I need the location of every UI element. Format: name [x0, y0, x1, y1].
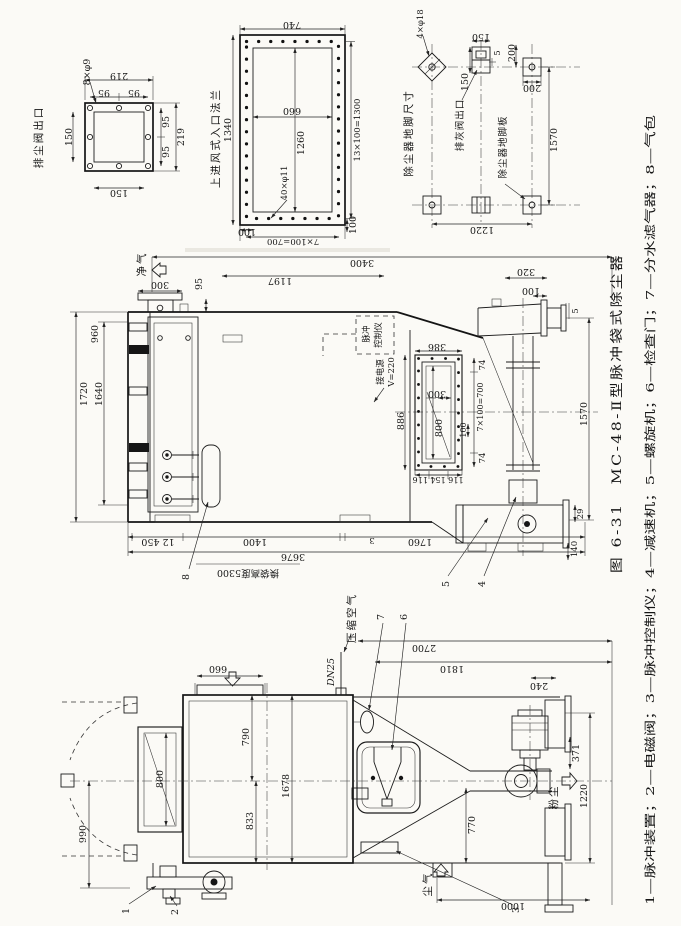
dim-790: 790 [241, 728, 252, 746]
dim-219-right: 219 [176, 128, 187, 146]
view-side-elevation: 脉冲 控制仪 接电源 V=220 净气 300 95 3400 1197 [70, 252, 612, 588]
wall-fittings [129, 323, 149, 498]
dim-1260: 1260 [296, 131, 307, 155]
bolt-ring [247, 42, 339, 219]
dim-219-top: 219 [110, 70, 128, 81]
leader-8: 8 [181, 574, 192, 580]
water-separator [361, 711, 374, 733]
label-controller: 控制仪 [373, 322, 384, 348]
hopper [353, 700, 552, 858]
dim-800: 800 [155, 770, 166, 788]
dim-pitch-bottom: 7×100=700 [267, 236, 319, 246]
dim-1220: 1220 [470, 224, 494, 235]
dim-150-left: 150 [64, 128, 75, 146]
dim-386: 386 [428, 341, 446, 352]
dim-800: 800 [434, 419, 445, 437]
dim-1570: 1570 [579, 402, 590, 426]
dim-1340: 1340 [223, 118, 234, 142]
label-voltage: V=220 [387, 357, 397, 387]
pulse-controller-box [361, 842, 398, 853]
leader-2: 2 [170, 909, 181, 915]
dim-95: 95 [128, 87, 140, 98]
caption-legend: 1—脉冲装置；2—电磁阀；3—脉冲控制仪；4—减速机；5—螺旋机；6—检查门；7… [643, 114, 657, 905]
dim-3400: 3400 [350, 257, 374, 268]
dim-100: 100 [348, 216, 359, 234]
screw-conveyor [432, 500, 569, 551]
note-bag-change-height: 换袋高度5300 [217, 567, 279, 579]
dim-1400: 1400 [243, 536, 267, 547]
dim-3676: 3676 [281, 551, 305, 562]
inspection-door [357, 742, 420, 813]
dim-100: 100 [522, 285, 540, 296]
label-ash-valve-outlet: 排灰阀出口 [454, 99, 466, 152]
label-clean-air: 净气 [135, 252, 148, 277]
name-plate [223, 335, 242, 342]
dim-29: 29 [576, 509, 586, 520]
label-foot-plate: 除尘器地脚板 [497, 115, 509, 178]
label-inlet-flange: 上进风式入口法兰 [209, 88, 222, 188]
dim-1678: 1678 [281, 774, 292, 798]
dim-100: 100 [238, 226, 256, 237]
view-dust-valve-outlet: 8×φ9 219 95 95 排尘阀出口 150 95 95 219 150 [32, 59, 187, 198]
label-foundation-title: 除尘器地脚尺寸 [402, 89, 415, 177]
dim-bolts: 8×φ9 [82, 59, 93, 86]
dim-150-bottom: 150 [110, 187, 128, 198]
dim-886: 886 [396, 412, 407, 430]
leader-7: 7 [376, 614, 387, 620]
dim-bolts: 4×φ18 [416, 9, 426, 38]
dim-320: 320 [517, 266, 535, 277]
dim-100: 100 [459, 422, 468, 437]
dim-300: 300 [428, 388, 446, 399]
dim-1810: 1810 [440, 663, 464, 674]
pulse-device [147, 863, 232, 904]
dim-240: 240 [530, 680, 548, 691]
dim-990: 990 [78, 825, 89, 843]
dim-200: 200 [523, 82, 541, 93]
figure-caption: 图 6-31 MC-48-Ⅱ型脉冲袋式除尘器 1—脉冲装置；2—电磁阀；3—脉冲… [610, 114, 657, 905]
dim-5: 5 [493, 50, 502, 55]
dim-chain: 116 154 116 [413, 475, 464, 484]
dim-1640: 1640 [94, 382, 105, 406]
label-pulse: 脉冲 [361, 325, 372, 342]
air-bag [202, 445, 220, 507]
drawing-canvas: 8×φ9 219 95 95 排尘阀出口 150 95 95 219 150 上… [0, 0, 681, 926]
dim-5: 5 [571, 308, 580, 313]
dim-300: 300 [151, 279, 169, 290]
leader-6: 6 [399, 614, 410, 620]
label-dirty-air: 尘气 [421, 872, 434, 897]
view-inlet-flange: 上进风式入口法兰 740 1340 660 1260 13×100=1300 4… [209, 19, 363, 246]
dim-833: 833 [245, 812, 256, 830]
dim-1570: 1570 [549, 128, 560, 152]
inspection-window [415, 355, 462, 475]
dim-bolts: 40×φ11 [280, 166, 290, 201]
leader-3: 3 [511, 907, 522, 913]
dim-95: 95 [194, 278, 205, 290]
dim-740: 740 [283, 19, 301, 30]
dim-95: 95 [161, 116, 172, 128]
dim-95: 95 [98, 87, 110, 98]
outlet-duct [478, 299, 566, 336]
open-doors [61, 697, 137, 861]
label-dn25: DN25 [326, 658, 337, 687]
dim-1720: 1720 [79, 382, 90, 406]
leader-4: 4 [477, 581, 488, 587]
view-end-elevation: 压缩空气 DN25 660 790 1678 833 800 990 2700 … [61, 593, 612, 915]
leader-5: 5 [441, 581, 452, 587]
view-foundation: 4×φ18 150 5 200 150 200 排灰阀出口 除尘器地脚板 除尘器… [402, 9, 580, 235]
clean-air-arrow-icon [152, 263, 166, 277]
label-compressed-air: 压缩空气 [345, 593, 358, 643]
dim-74: 74 [478, 453, 488, 464]
dim-150: 150 [472, 31, 490, 42]
dim-371: 371 [571, 744, 582, 762]
dim-1197: 1197 [268, 275, 292, 286]
dim-pitch: 7×100=700 [476, 382, 485, 431]
pulse-controller: 脉冲 控制仪 [323, 316, 394, 356]
dim-660: 660 [209, 663, 227, 674]
screw-drive [505, 710, 550, 797]
dim-74: 74 [478, 360, 488, 371]
label-power: 接电源 [375, 359, 386, 385]
dim-660: 660 [283, 105, 301, 116]
dim-1220: 1220 [579, 784, 590, 808]
dim-12-450: 12 450 [141, 536, 174, 547]
dim-200: 200 [507, 44, 518, 62]
dim-3: 3 [369, 535, 374, 545]
dim-1760: 1760 [408, 536, 432, 547]
dim-pitch-right: 13×100=1300 [353, 99, 363, 162]
dim-95: 95 [161, 146, 172, 158]
leader-1: 1 [121, 908, 132, 914]
dim-960: 960 [90, 325, 101, 343]
dim-140: 140 [570, 541, 580, 557]
scanned-drawing-page: 8×φ9 219 95 95 排尘阀出口 150 95 95 219 150 上… [0, 0, 681, 926]
dim-150: 150 [460, 73, 471, 91]
label-dust-out: 粉尘 [547, 785, 560, 810]
bolt-holes [87, 105, 150, 168]
dim-2700: 2700 [412, 642, 436, 653]
scan-artifact [185, 248, 390, 252]
caption-title: 图 6-31 MC-48-Ⅱ型脉冲袋式除尘器 [610, 253, 625, 573]
dim-770: 770 [467, 816, 478, 834]
pulse-valve-bank [163, 451, 200, 504]
label-dust-valve-outlet: 排尘阀出口 [32, 106, 45, 169]
